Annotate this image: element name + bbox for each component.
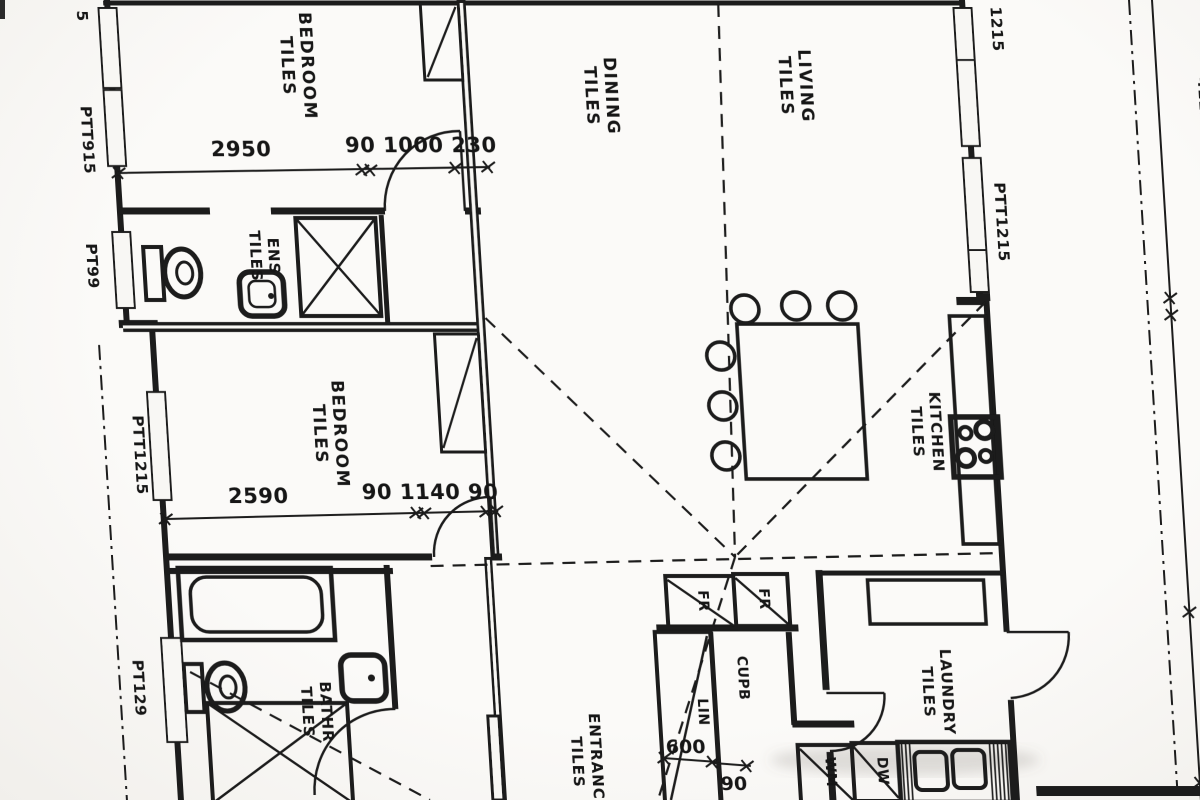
- label-fridge-1: FR: [694, 590, 711, 611]
- ensuite-linen-box: [295, 218, 381, 316]
- scan-edge-mark: [0, 0, 5, 19]
- laundry-external-door: [1007, 632, 1073, 698]
- room-label-laundry: LAUNDRYTILES: [917, 649, 959, 736]
- bedroom2-wardrobe: [434, 334, 485, 452]
- window-label-pt99: PT99: [82, 243, 103, 288]
- exterior-walls: [99, 0, 1200, 800]
- room-label-living: LIVINGTILES: [773, 49, 817, 123]
- label-dishwasher: DW: [873, 757, 891, 785]
- bedroom1-wardrobe: [420, 4, 463, 80]
- window-label-fragment-top-left: 5: [73, 10, 92, 21]
- room-label-bedroom-1: BEDROOMTILES: [274, 12, 321, 120]
- label-linen: LIN: [694, 698, 712, 725]
- bedroom2-door: [430, 497, 494, 557]
- scanned-floor-plan-page: BEDROOMTILES DININGTILES LIVINGTILES KIT…: [0, 0, 1200, 800]
- bathtub: [178, 568, 335, 640]
- window-label-pt129: PT129: [128, 660, 149, 717]
- bedroom1-finish: TILES: [275, 36, 299, 96]
- label-fridge-2: FR: [755, 588, 772, 609]
- window-label-ptt915: PTT915: [76, 106, 98, 174]
- room-label-bathroom: BATHRTILES: [297, 681, 338, 742]
- laundry-bench: [867, 580, 986, 624]
- room-label-bedroom-2: BEDROOMTILES: [306, 380, 353, 488]
- dimension-lines: [101, 0, 1200, 800]
- floor-plan-canvas: BEDROOMTILES DININGTILES LIVINGTILES KIT…: [0, 0, 1200, 800]
- dim-bedroom2-door: 90 1140 90: [361, 479, 499, 504]
- dim-linen-wall: 90: [720, 773, 748, 795]
- bathroom-basin: [340, 655, 387, 701]
- dim-bedroom2-width: 2590: [227, 483, 289, 508]
- window-label-ptt1215-left: PTT1215: [128, 415, 151, 494]
- dimension-far-right-partial: 4115: [1194, 77, 1200, 122]
- plan-drawing: BEDROOMTILES DININGTILES LIVINGTILES KIT…: [67, 0, 1200, 800]
- interior-walls: [103, 0, 1017, 800]
- dim-linen-width: 600: [665, 736, 706, 758]
- label-washing-machine: WM: [821, 757, 839, 787]
- room-label-ensuite: ENSTILES: [245, 230, 284, 281]
- room-label-kitchen: KITCHENTILES: [906, 392, 948, 473]
- room-label-dining: DININGTILES: [578, 57, 623, 135]
- dim-bedroom1-door: 90 1000 230: [344, 132, 497, 157]
- window-label-ptt1215-right: PTT1215: [990, 182, 1013, 261]
- dining-table: [702, 292, 867, 479]
- dim-bedroom1-width: 2950: [210, 136, 272, 161]
- room-label-entrance: ENTRANCETILES: [566, 713, 609, 800]
- label-cupboard: CUPB: [733, 656, 752, 701]
- ensuite-toilet: [143, 247, 202, 300]
- window-label-fragment-top-right: 1215: [986, 6, 1007, 51]
